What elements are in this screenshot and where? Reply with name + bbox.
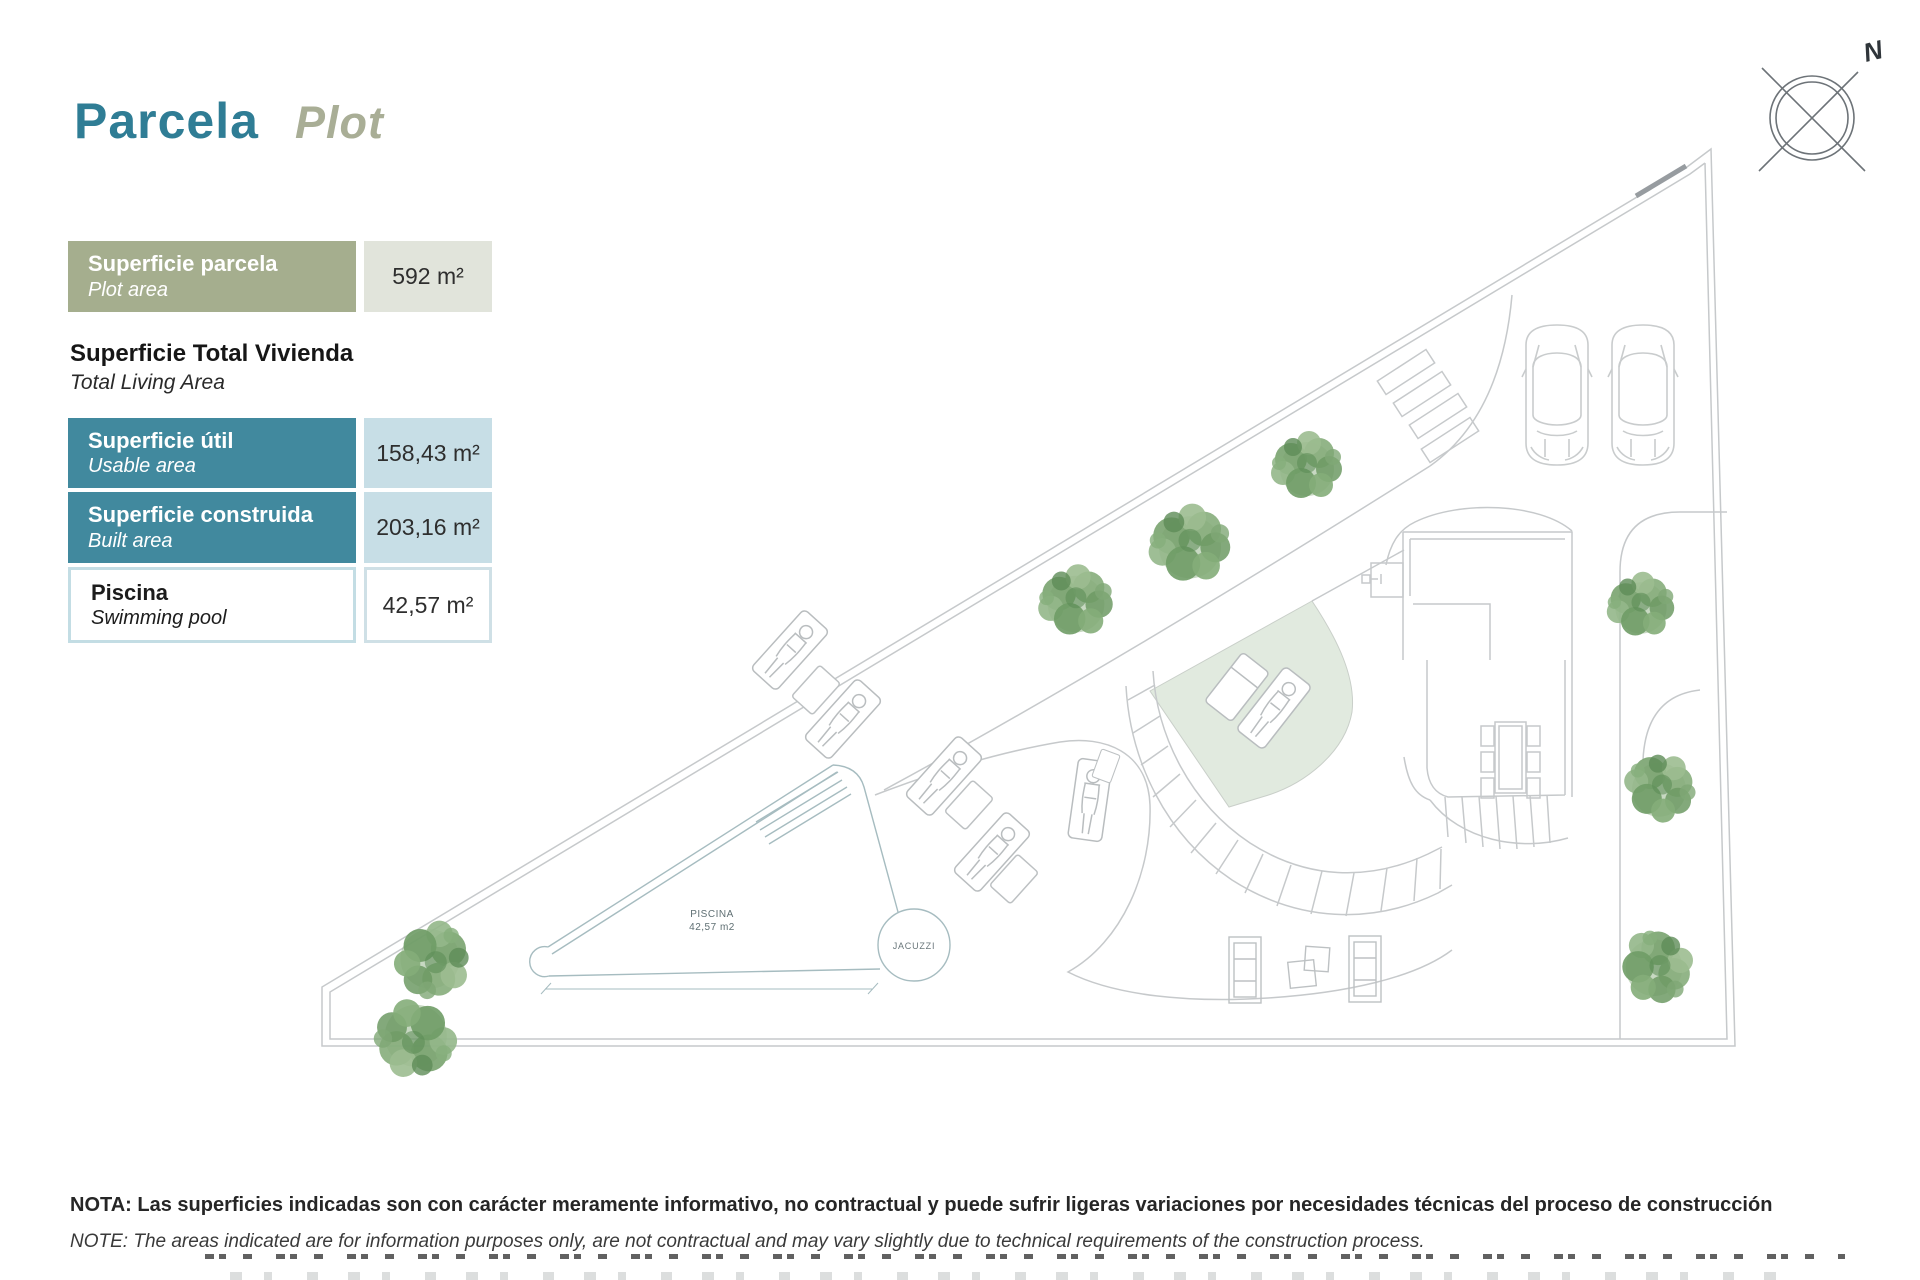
tree-icon bbox=[1038, 564, 1113, 634]
table-row-built-area: Superficie construida Built area 203,16 … bbox=[68, 492, 492, 563]
side-table-icon bbox=[1092, 749, 1120, 783]
tree-icon bbox=[383, 909, 486, 1013]
plan-linework bbox=[322, 149, 1735, 1046]
plot-area-label: Superficie parcela Plot area bbox=[68, 241, 356, 312]
sofa-icon bbox=[1229, 937, 1261, 1003]
built-area-label: Superficie construida Built area bbox=[68, 492, 356, 563]
page-title-en: Plot bbox=[295, 97, 384, 149]
footnote-es: NOTA: Las superficies indicadas son con … bbox=[70, 1194, 1870, 1217]
footnote-en: NOTE: The areas indicated are for inform… bbox=[70, 1231, 1870, 1253]
tree-icon bbox=[363, 991, 466, 1091]
built-area-label-en: Built area bbox=[88, 529, 356, 554]
pool bbox=[530, 765, 950, 994]
tree-icon bbox=[1607, 572, 1674, 636]
living-area-heading-en: Total Living Area bbox=[70, 369, 492, 396]
page-title-es: Parcela bbox=[74, 92, 259, 150]
plot-area-label-es: Superficie parcela bbox=[88, 250, 356, 278]
jacuzzi-label: JACUZZI bbox=[893, 941, 936, 951]
cropped-text-strip-light bbox=[230, 1272, 1790, 1280]
area-table: Superficie parcela Plot area 592 m² Supe… bbox=[68, 241, 492, 648]
usable-area-value: 158,43 m² bbox=[364, 418, 492, 489]
table-row-plot-area: Superficie parcela Plot area 592 m² bbox=[68, 241, 492, 312]
pool-row-value: 42,57 m² bbox=[364, 567, 492, 644]
usable-area-label-en: Usable area bbox=[88, 454, 356, 479]
living-area-heading: Superficie Total Vivienda Total Living A… bbox=[70, 338, 492, 396]
pool-row-label-en: Swimming pool bbox=[91, 606, 353, 631]
car-icon bbox=[1608, 325, 1678, 465]
lawn-area bbox=[1150, 601, 1353, 807]
table-row-swimming-pool: Piscina Swimming pool 42,57 m² bbox=[68, 567, 492, 644]
page-title: Parcela Plot bbox=[74, 92, 384, 150]
footnote: NOTA: Las superficies indicadas son con … bbox=[70, 1194, 1870, 1253]
usable-area-label-es: Superficie útil bbox=[88, 427, 356, 455]
pool-row-label: Piscina Swimming pool bbox=[68, 567, 356, 644]
cropped-text-strip-dark bbox=[205, 1254, 1845, 1259]
sofa-icon bbox=[1349, 936, 1381, 1002]
built-area-label-es: Superficie construida bbox=[88, 501, 356, 529]
coffee-tables bbox=[1288, 946, 1330, 988]
pool-label-piscina: PISCINA bbox=[690, 909, 734, 920]
tree-icon bbox=[1271, 431, 1342, 498]
tree-icon bbox=[1613, 739, 1708, 833]
living-area-heading-es: Superficie Total Vivienda bbox=[70, 338, 492, 369]
plot-area-value: 592 m² bbox=[364, 241, 492, 312]
pool-row-label-es: Piscina bbox=[91, 579, 353, 607]
compass-icon bbox=[1759, 68, 1865, 171]
plot-area-label-en: Plot area bbox=[88, 278, 356, 303]
car-icon bbox=[1522, 325, 1592, 465]
built-area-value: 203,16 m² bbox=[364, 492, 492, 563]
usable-area-label: Superficie útil Usable area bbox=[68, 418, 356, 489]
tree-icon bbox=[1149, 504, 1231, 581]
pool-label-area: 42,57 m2 bbox=[689, 922, 735, 933]
table-row-usable-area: Superficie útil Usable area 158,43 m² bbox=[68, 418, 492, 489]
tree-icon bbox=[1612, 919, 1704, 1013]
compass-north-label: N bbox=[1860, 34, 1887, 68]
